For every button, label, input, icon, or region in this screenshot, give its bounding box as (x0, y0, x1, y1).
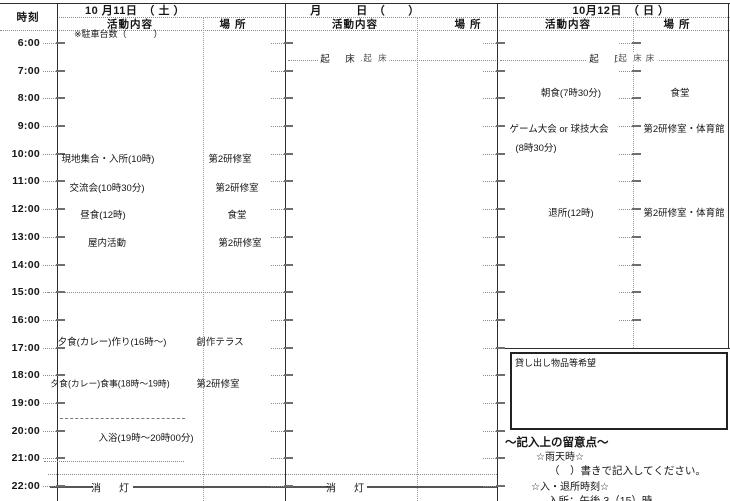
time-label: 16:00 (2, 313, 40, 327)
place-label: 第2研修室 (208, 151, 251, 165)
time-column-header: 時刻 (17, 10, 40, 25)
day2-wakeup-label-ghost: 起 床 (362, 52, 389, 64)
place-label: 創作テラス (196, 334, 243, 348)
time-label: 13:00 (2, 230, 40, 244)
day1-place-header: 場 所 (220, 17, 247, 32)
hour-tick (483, 181, 496, 182)
hour-tick (56, 42, 65, 44)
hour-tick (56, 402, 65, 404)
day3-wakeup-label-ghost2: 床 (645, 52, 658, 64)
hour-tick (271, 486, 284, 487)
hour-tick (284, 457, 293, 459)
hour-tick (43, 71, 56, 72)
hour-tick (284, 374, 293, 376)
hour-tick (284, 97, 293, 99)
activity-label: 退所(12時) (548, 205, 593, 219)
hour-tick (43, 181, 56, 182)
lights-out-line-seg3 (367, 486, 497, 488)
activity-label: 入浴(19時〜20時00分) (98, 430, 193, 444)
day1-day2-border (285, 3, 286, 501)
hour-tick (632, 42, 641, 44)
activity-label: ゲーム大会 or 球技大会 (510, 121, 609, 135)
hour-tick (284, 291, 293, 293)
time-label: 7:00 (2, 64, 40, 78)
hour-tick (483, 265, 496, 266)
hour-tick (43, 126, 56, 127)
hour-tick (496, 208, 505, 210)
day2-place-header: 場 所 (455, 17, 482, 32)
day3-place-divider (633, 17, 634, 348)
activity-label: 現地集合・入所(10時) (62, 151, 155, 165)
hour-tick (496, 97, 505, 99)
hour-tick (483, 43, 496, 44)
hour-tick (483, 237, 496, 238)
hour-tick (271, 43, 284, 44)
hour-tick (496, 264, 505, 266)
hour-tick (56, 485, 65, 487)
day3-wakeup-label-ghost: 起 床 (617, 52, 644, 64)
hour-tick (271, 320, 284, 321)
hour-tick (619, 98, 632, 99)
day2-wakeup-label: 起 床 (318, 51, 360, 65)
hour-tick (43, 486, 56, 487)
hour-tick (632, 70, 641, 72)
day2-activity-header: 活動内容 (332, 17, 378, 32)
time-label: 22:00 (2, 479, 40, 493)
hour-tick (284, 180, 293, 182)
hour-tick (619, 320, 632, 321)
day1-15h-divider-line (48, 292, 290, 293)
table-right-border (728, 3, 729, 348)
place-label: 食堂 (670, 85, 689, 99)
hour-tick (56, 236, 65, 238)
hour-tick (632, 236, 641, 238)
time-column-border (57, 3, 58, 501)
hour-tick (483, 486, 496, 487)
time-label: 19:00 (2, 396, 40, 410)
activity-label: 昼食(12時) (80, 207, 125, 221)
hour-tick (496, 402, 505, 404)
time-label: 15:00 (2, 285, 40, 299)
hour-tick (271, 375, 284, 376)
hour-tick (56, 97, 65, 99)
hour-tick (619, 292, 632, 293)
hour-tick (284, 125, 293, 127)
hour-tick (284, 347, 293, 349)
hour-tick (284, 42, 293, 44)
day1-place-divider (203, 17, 204, 501)
hour-tick (619, 237, 632, 238)
hour-tick (56, 70, 65, 72)
time-label: 6:00 (2, 36, 40, 50)
hour-tick (43, 154, 56, 155)
rain-title: ☆雨天時☆ (536, 448, 584, 463)
hour-tick (632, 291, 641, 293)
hour-tick (271, 265, 284, 266)
hour-tick (43, 98, 56, 99)
hour-tick (483, 292, 496, 293)
lending-items-box[interactable]: 貸し出し物品等希望 (510, 352, 728, 430)
hour-tick (271, 348, 284, 349)
hour-tick (284, 264, 293, 266)
hour-tick (56, 291, 65, 293)
hour-tick (284, 153, 293, 155)
hour-tick (496, 485, 505, 487)
place-label: 食堂 (227, 207, 246, 221)
hour-tick (632, 208, 641, 210)
rain-instruction: （ ）書きで記入してください。 (549, 463, 706, 478)
hour-tick (483, 209, 496, 210)
hour-tick (284, 319, 293, 321)
hour-tick (619, 126, 632, 127)
entry-time-line: 入所：午後 3（15）時 (548, 493, 652, 501)
hour-tick (483, 375, 496, 376)
hour-tick (496, 457, 505, 459)
day3-activity-header: 活動内容 (545, 17, 591, 32)
hour-tick (496, 347, 505, 349)
hour-tick (271, 154, 284, 155)
hour-tick (43, 292, 56, 293)
time-label: 11:00 (2, 174, 40, 188)
hour-tick (632, 319, 641, 321)
hour-tick (271, 403, 284, 404)
time-label: 20:00 (2, 424, 40, 438)
hour-tick (56, 264, 65, 266)
day2-place-divider (417, 17, 418, 501)
hour-tick (483, 98, 496, 99)
time-label: 12:00 (2, 202, 40, 216)
hour-tick (284, 70, 293, 72)
hour-tick (56, 208, 65, 210)
activity-label: 屋内活動 (88, 235, 126, 249)
hour-tick (496, 291, 505, 293)
hour-tick (483, 126, 496, 127)
day3-place-header: 場 所 (664, 17, 691, 32)
parking-count-note: ※駐車台数（ ） (74, 27, 163, 40)
hour-tick (619, 43, 632, 44)
hour-tick (632, 97, 641, 99)
activity-label: 夕食(カレー)作り(16時〜) (58, 334, 167, 348)
hour-tick (632, 264, 641, 266)
hour-tick (483, 320, 496, 321)
hour-tick (56, 125, 65, 127)
hour-tick (284, 208, 293, 210)
hour-tick (632, 153, 641, 155)
hour-tick (43, 320, 56, 321)
hour-tick (496, 236, 505, 238)
hour-tick (496, 70, 505, 72)
hour-tick (271, 181, 284, 182)
hour-tick (496, 125, 505, 127)
hour-tick (483, 458, 496, 459)
place-label: 第2研修室 (215, 180, 258, 194)
time-label: 18:00 (2, 368, 40, 382)
hour-tick (632, 125, 641, 127)
hour-tick (284, 430, 293, 432)
hour-tick (43, 458, 56, 459)
hour-tick (43, 43, 56, 44)
hour-tick (43, 265, 56, 266)
hour-tick (496, 180, 505, 182)
hour-tick (284, 236, 293, 238)
hour-tick (496, 374, 505, 376)
hour-tick (271, 431, 284, 432)
hour-tick (284, 485, 293, 487)
lending-items-box-label: 貸し出し物品等希望 (512, 354, 726, 371)
hour-tick (619, 209, 632, 210)
hour-tick (271, 292, 284, 293)
hour-tick (43, 348, 56, 349)
place-label: 第2研修室・体育館 (643, 121, 724, 135)
hour-tick (496, 42, 505, 44)
hour-tick (43, 237, 56, 238)
hour-tick (619, 265, 632, 266)
time-label: 17:00 (2, 341, 40, 355)
hour-tick (619, 181, 632, 182)
hour-tick (483, 431, 496, 432)
hour-tick (483, 154, 496, 155)
time-label: 21:00 (2, 451, 40, 465)
hour-tick (43, 403, 56, 404)
hour-tick (483, 403, 496, 404)
hour-tick (56, 457, 65, 459)
hour-tick (496, 430, 505, 432)
place-label: 第2研修室 (196, 376, 239, 390)
hour-tick (43, 209, 56, 210)
hour-tick (271, 98, 284, 99)
time-label: 9:00 (2, 119, 40, 133)
schedule-form: 時刻 10 月11日 （ 土 ） 月 日 （ ） 10月12日 （ 日 ） 活動… (0, 0, 730, 501)
hour-tick (56, 430, 65, 432)
hour-tick (43, 431, 56, 432)
hour-tick (483, 71, 496, 72)
time-label: 10:00 (2, 147, 40, 161)
day1-lights-out-label: 消 灯 (91, 480, 133, 495)
hour-tick (632, 180, 641, 182)
day1-1930-dashed-line (60, 418, 185, 419)
day2-lights-out-label: 消 灯 (326, 480, 368, 495)
2130-dotted-line (48, 474, 497, 475)
hour-tick (271, 458, 284, 459)
hour-tick (619, 71, 632, 72)
day1-21h-dotted-line (44, 461, 184, 462)
hour-tick (284, 402, 293, 404)
activity-label: 交流会(10時30分) (70, 180, 145, 194)
activity-label: 夕食(カレー)食事(18時〜19時) (50, 377, 169, 390)
hour-tick (271, 71, 284, 72)
hour-tick (271, 126, 284, 127)
place-label: 第2研修室 (218, 235, 261, 249)
hour-tick (619, 154, 632, 155)
hour-tick (56, 319, 65, 321)
time-label: 14:00 (2, 258, 40, 272)
hour-tick (496, 153, 505, 155)
hour-tick (56, 180, 65, 182)
hour-tick (271, 237, 284, 238)
activity-sublabel: (8時30分) (515, 140, 556, 154)
hour-tick (271, 209, 284, 210)
hour-tick (496, 319, 505, 321)
place-label: 第2研修室・体育館 (643, 205, 724, 219)
lights-out-line-seg2 (133, 486, 330, 488)
hour-tick (483, 348, 496, 349)
time-label: 8:00 (2, 91, 40, 105)
entry-exit-title: ☆入・退所時刻☆ (531, 478, 609, 493)
activity-label: 朝食(7時30分) (541, 85, 601, 99)
